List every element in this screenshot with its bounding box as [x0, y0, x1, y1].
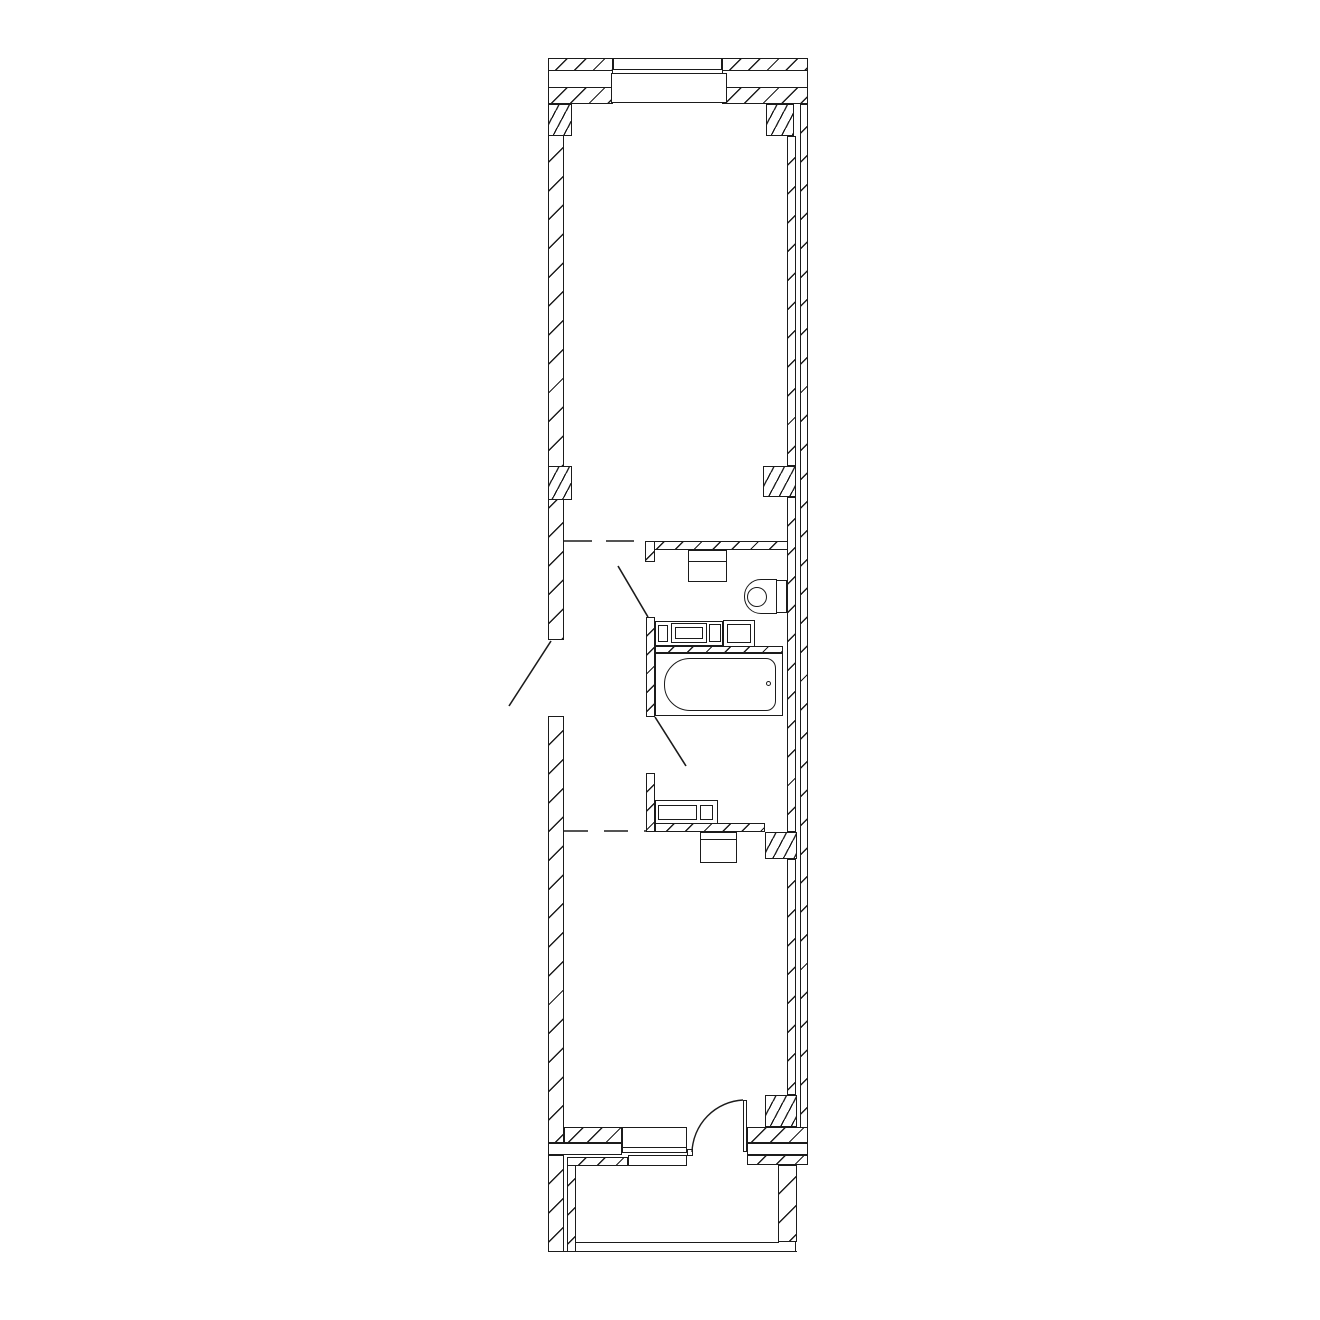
floor-plan-canvas — [0, 0, 1320, 1320]
bathroom-door-leaf-upper — [618, 566, 648, 617]
entry-door-leaf — [509, 641, 551, 706]
bathroom-door-leaf-lower — [655, 717, 686, 766]
balcony-door-swing-arc — [692, 1100, 743, 1152]
door-swing-overlay — [0, 0, 1320, 1320]
